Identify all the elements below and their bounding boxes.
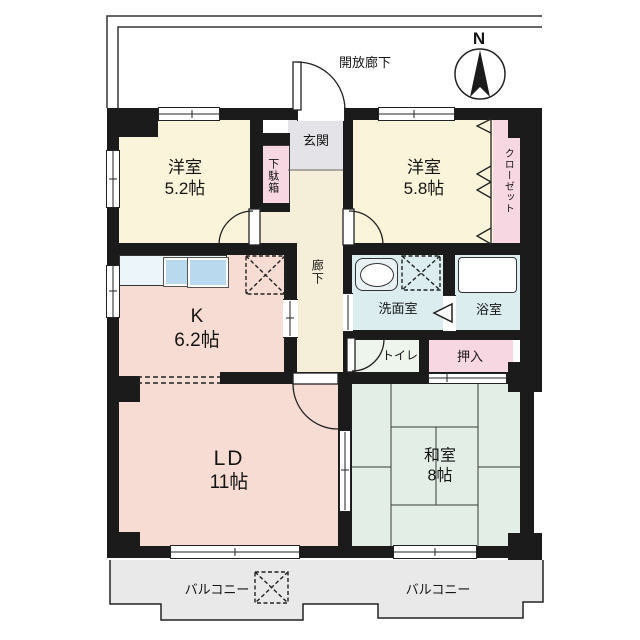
wall-shoebox-cap (263, 133, 290, 145)
wall-corner-ne (508, 108, 542, 138)
room-label-bathroom: 浴室 (476, 303, 502, 317)
wall-washroom-south (343, 330, 520, 340)
room-label-living-name: LD (214, 448, 245, 470)
balcony-label-right: バルコニー (406, 583, 471, 597)
wall-hallway-east-upper (343, 108, 353, 212)
front-door-arc (293, 62, 345, 110)
room-label-kitchen-name: K (191, 307, 204, 327)
wall-kitchen-top-east (343, 243, 520, 255)
balcony-label-left: バルコニー (185, 583, 250, 597)
sliding-door-ld-washitsu (339, 430, 351, 512)
room-label-closet: クローゼット (502, 148, 513, 214)
room-label-kitchen-size: 6.2帖 (174, 331, 219, 351)
kitchen-stove (188, 258, 228, 287)
wall-kitchen-top-west (119, 243, 297, 255)
room-label-japanese-name: 和室 (424, 449, 456, 466)
room-label-japanese-size: 8帖 (428, 469, 453, 486)
window-western58-north (378, 107, 455, 121)
front-door-opening (297, 107, 345, 121)
japanese-room-floor (348, 380, 524, 552)
window-western52-west (106, 150, 120, 208)
opening-kitchen (283, 299, 298, 338)
compass-north-label: N (473, 30, 485, 48)
room-label-western58-size: 5.8帖 (404, 180, 445, 198)
room-label-western58-name: 洋室 (407, 159, 441, 177)
wall-shoebox-bottom (256, 203, 290, 212)
wall-corner-oshiire (508, 362, 542, 392)
room-label-toilet: トイレ (382, 350, 418, 363)
bathtub (458, 257, 517, 293)
room-label-hallway: 廊下 (311, 259, 324, 285)
window-western52-north (158, 107, 220, 121)
window-ld-south (170, 545, 300, 559)
window-washitsu-south (393, 545, 477, 559)
balcony-floor (107, 558, 543, 622)
open-corridor-label: 開放廊下 (339, 56, 391, 70)
wall-corner-se (508, 533, 542, 560)
wall-corner-sw (107, 532, 140, 558)
wall-toilet-oshiire (419, 337, 429, 377)
window-kitchen-west (106, 265, 120, 318)
north-compass-icon (455, 49, 505, 99)
opening-washroom (343, 293, 353, 332)
wall-ld-north (220, 372, 345, 384)
wall-corner-kitchen-ld (113, 376, 140, 402)
wall-jog-east (534, 392, 544, 533)
wall-western52-east (250, 108, 263, 210)
washbasin-bowl-icon (360, 263, 394, 287)
room-label-western52-size: 5.2帖 (165, 180, 206, 198)
sliding-door-oshiire (428, 373, 507, 384)
room-label-living-size: 11帖 (210, 473, 249, 493)
kitchen-sink (164, 258, 189, 286)
floorplan: 開放廊下 N 洋室 5.2帖 洋室 5.8帖 玄関 下駄箱 クローゼット 廊下 … (0, 0, 640, 640)
room-label-entrance: 玄関 (303, 134, 329, 148)
room-label-futon-closet: 押入 (457, 350, 483, 364)
room-label-western52-name: 洋室 (168, 159, 202, 177)
room-label-shoe-cabinet: 下駄箱 (266, 158, 278, 194)
room-label-washroom: 洗面室 (378, 302, 417, 316)
opening-bathroom (443, 295, 456, 332)
